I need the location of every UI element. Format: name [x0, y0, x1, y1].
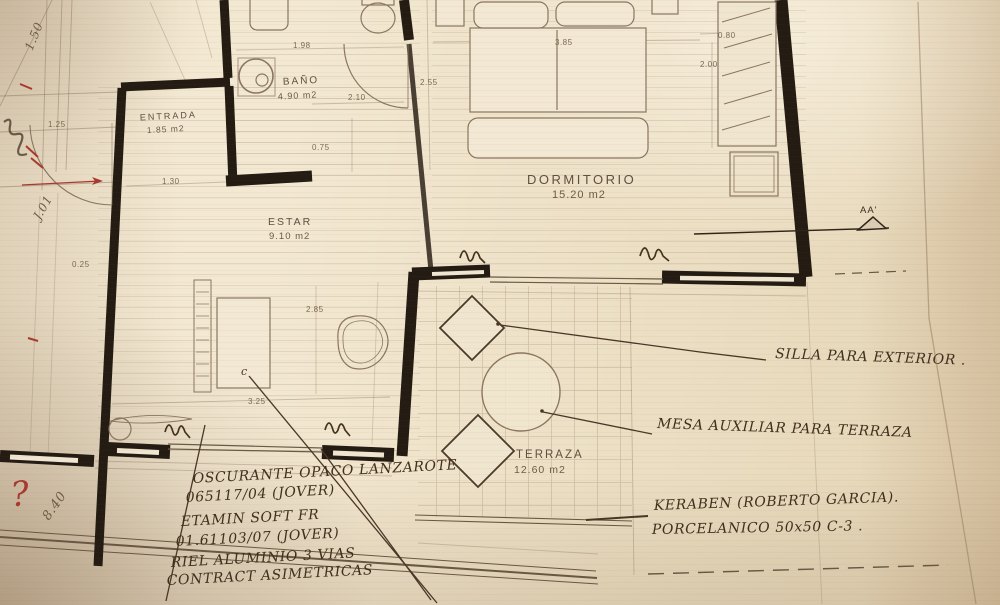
wall-bathroom-left — [224, 0, 228, 78]
note-table: MESA AUXILIAR PARA TERRAZA — [656, 416, 913, 441]
terrace-outer-line — [418, 543, 598, 554]
building-edge-line — [807, 282, 822, 604]
room-area-terraza: 12.60 m2 — [514, 464, 566, 476]
dim-bano-door: 2.10 — [348, 93, 366, 102]
pier-slot-1 — [432, 272, 484, 274]
nightstand-right — [652, 0, 678, 14]
wall-bathroom-door-pier — [404, 0, 409, 40]
room-label-terraza: TERRAZA — [516, 449, 584, 461]
bedroom-window-glazing — [490, 277, 663, 284]
red-tick-1 — [20, 84, 32, 89]
pier-slot-3 — [117, 451, 159, 453]
pier-slot-4 — [333, 453, 384, 455]
pillow-left — [474, 2, 548, 28]
terrace-table — [482, 353, 560, 431]
margin-vertical-lines — [42, 0, 72, 190]
pier-slot-2 — [680, 278, 794, 280]
wardrobe — [718, 2, 776, 146]
note-tile-1: KERABEN (ROBERTO GARCIA). — [653, 489, 900, 514]
margin-vertical-lines-lower — [30, 193, 58, 458]
section-triangle — [858, 217, 886, 230]
dim-bano-fixture: 0.75 — [312, 143, 330, 152]
pillow-right — [556, 2, 634, 26]
dim-bano-width: 1.98 — [293, 41, 311, 50]
note-question-mark: ? — [9, 474, 32, 516]
wall-entry-right — [229, 86, 233, 184]
dim-estar-depth: 2.85 — [306, 305, 324, 314]
scribble-left-margin — [4, 120, 27, 155]
section-dashed-line-right — [835, 271, 906, 274]
dim-entrada-width: 1.30 — [162, 177, 180, 186]
dim-wall-offset: 0.25 — [72, 260, 90, 269]
exterior-diagonals — [150, 0, 212, 80]
section-label: AA' — [860, 205, 878, 216]
section-dashed-line-bottom — [648, 565, 948, 574]
room-area-dormitorio: 15.20 m2 — [552, 189, 606, 201]
wall-bathroom-bottom — [226, 176, 312, 181]
dim-entry-door: 1.25 — [48, 120, 66, 129]
dim-bano-side: 2.55 — [420, 78, 438, 87]
fold-lines — [918, 2, 976, 604]
dim-bed-width: 3.85 — [555, 38, 573, 47]
note-small-mark: c — [241, 365, 248, 378]
note-fabric-1: ETAMIN SOFT FR — [179, 507, 319, 530]
paper-crease — [918, 2, 976, 604]
wall-entry-top — [121, 82, 230, 87]
red-dash — [28, 338, 38, 341]
leader-dot-table — [540, 409, 544, 413]
bed-bench — [468, 118, 648, 158]
nightstand-left — [436, 0, 464, 26]
note-margin-bottom: 8.40 — [40, 489, 70, 523]
note-margin-mid: J.01 — [29, 193, 55, 225]
floor-plan-drawing: 1.98 2.10 2.55 0.75 1.30 1.25 0.25 3.85 … — [0, 0, 1000, 605]
dim-closet-depth: 2.00 — [700, 60, 718, 69]
pencil-scribbles — [4, 120, 27, 155]
floor-textures — [98, 0, 806, 517]
dim-estar-window: 3.25 — [248, 397, 266, 406]
note-fabric-2: 01.61103/07 (JOVER) — [175, 525, 339, 550]
room-label-dormitorio: DORMITORIO — [527, 172, 636, 187]
note-margin-top: 1.50 — [22, 20, 46, 52]
note-tile-2: PORCELANICO 50x50 C-3 . — [651, 518, 863, 538]
room-area-entrada: 1.85 m2 — [147, 123, 185, 135]
room-label-estar: ESTAR — [268, 216, 312, 228]
floor-plan-photo: 1.98 2.10 2.55 0.75 1.30 1.25 0.25 3.85 … — [0, 0, 1000, 605]
pier-slot-5 — [10, 457, 78, 461]
leader-dot-chair — [496, 322, 500, 326]
dim-closet-width: 0.80 — [718, 31, 736, 40]
note-chair: SILLA PARA EXTERIOR . — [775, 346, 966, 369]
room-area-bano: 4.90 m2 — [278, 89, 318, 101]
room-area-estar: 9.10 m2 — [269, 231, 310, 242]
